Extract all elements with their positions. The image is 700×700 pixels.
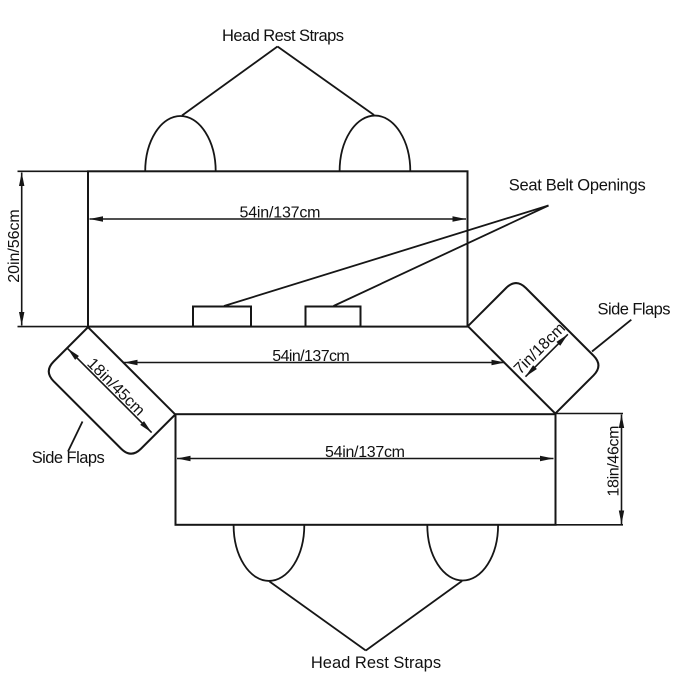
svg-text:18in/46cm: 18in/46cm — [606, 426, 623, 497]
svg-text:Head Rest Straps: Head Rest Straps — [311, 654, 441, 672]
svg-text:54in/137cm: 54in/137cm — [240, 205, 321, 222]
svg-text:Seat Belt Openings: Seat Belt Openings — [509, 177, 646, 195]
svg-text:7in/18cm: 7in/18cm — [511, 320, 569, 378]
svg-text:20in/56cm: 20in/56cm — [6, 209, 23, 283]
svg-text:54in/137cm: 54in/137cm — [272, 348, 350, 365]
svg-text:18in/45cm: 18in/45cm — [83, 355, 147, 419]
svg-text:Head Rest Straps: Head Rest Straps — [222, 27, 344, 45]
svg-text:Side Flaps: Side Flaps — [598, 301, 671, 319]
svg-text:Side Flaps: Side Flaps — [32, 449, 105, 467]
svg-text:54in/137cm: 54in/137cm — [325, 444, 405, 461]
